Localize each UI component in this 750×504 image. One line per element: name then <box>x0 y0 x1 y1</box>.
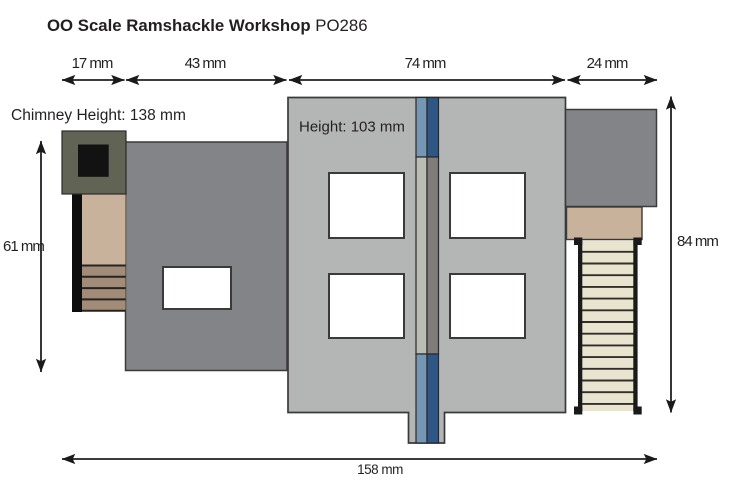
svg-text:24 mm: 24 mm <box>587 55 628 72</box>
svg-text:61 mm: 61 mm <box>3 238 44 255</box>
svg-text:Height: 103 mm: Height: 103 mm <box>299 119 405 136</box>
svg-text:74 mm: 74 mm <box>405 55 446 72</box>
svg-text:43 mm: 43 mm <box>185 55 226 72</box>
svg-text:OO Scale Ramshackle Workshop P: OO Scale Ramshackle Workshop PO286 <box>47 16 368 35</box>
svg-text:Chimney Height: 138 mm: Chimney Height: 138 mm <box>11 107 186 124</box>
svg-text:158 mm: 158 mm <box>357 462 403 477</box>
svg-text:17 mm: 17 mm <box>72 55 113 72</box>
svg-text:84 mm: 84 mm <box>677 233 718 250</box>
